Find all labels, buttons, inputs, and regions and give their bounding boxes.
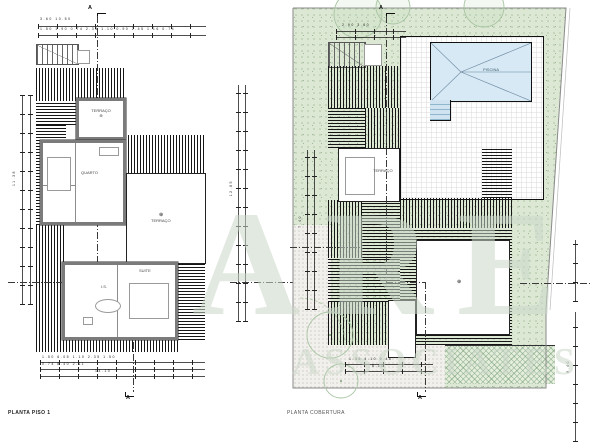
deck-hatch	[178, 262, 205, 340]
interior-wall	[75, 143, 76, 222]
room-suite: I.S. SUITE	[62, 262, 178, 340]
room-label: QUARTO	[81, 171, 98, 176]
section-marker-a: A	[88, 5, 92, 11]
dimension-line	[345, 362, 433, 367]
dim-text: 3.60 10.50	[40, 17, 208, 21]
bed	[129, 283, 169, 319]
dim-text: 12.85	[229, 180, 233, 196]
dimension-line	[28, 95, 33, 305]
dim-text: 2.90 3.60	[342, 23, 370, 27]
section-axis-line	[386, 16, 387, 282]
axis-line	[290, 247, 362, 248]
stair-landing	[77, 50, 90, 64]
dim-text: 1.50 6.05 1.10 2.35 1.50	[42, 355, 207, 359]
dimension-line	[40, 367, 205, 372]
section-axis-jog	[386, 282, 425, 283]
tree-trunk-dot	[340, 380, 342, 382]
level-marker: ⊕	[79, 114, 123, 119]
stairs	[36, 44, 79, 65]
dimension-line	[336, 35, 406, 40]
section-flag-icon	[386, 13, 395, 18]
dimension-line	[345, 369, 433, 374]
dim-text: 1.50 1.90 0.74 2.35 1.10 0.90 2.45 1.16 …	[40, 27, 208, 31]
plan-caption-left: PLANTA PISO 1	[8, 410, 50, 416]
bathtub	[95, 299, 121, 313]
room-terrace-top: TERRAÇO ⊕	[76, 98, 126, 140]
section-marker-a: A	[126, 395, 130, 401]
room-label: I.S.	[101, 285, 107, 290]
dim-text: 6.10	[372, 364, 385, 368]
dim-text: 9.40	[566, 360, 570, 373]
dimension-line	[573, 312, 578, 442]
dim-text: 11.38	[12, 170, 16, 186]
dimension-line	[38, 33, 206, 38]
dimension-line	[305, 150, 310, 310]
room-label: SUITE	[139, 269, 151, 274]
site-boundary-line	[293, 8, 566, 388]
wardrobe	[99, 147, 119, 156]
dimension-line	[40, 374, 205, 379]
bed	[47, 157, 71, 191]
section-marker-a: A	[379, 5, 383, 11]
dim-text: 1.35 4.10 0.45	[349, 357, 392, 361]
room-bedroom: QUARTO	[40, 140, 126, 225]
deck-hatch	[125, 135, 205, 173]
room-label: TERRAÇO	[151, 219, 171, 224]
dimension-line	[20, 95, 25, 305]
section-axis-line	[425, 282, 426, 392]
tree-icon	[464, 0, 504, 27]
drawing-sheet: 3.60 10.50 1.50 1.90 0.74 2.35 1.10 0.90…	[0, 0, 600, 447]
terrace-right: ⊕ TERRAÇO	[126, 173, 206, 264]
deck-hatch	[36, 101, 77, 125]
dimension-line	[236, 85, 241, 322]
dim-text: 7.40	[298, 215, 302, 228]
dimension-line	[336, 29, 406, 34]
site-overlay	[287, 0, 577, 400]
tree-trunk-dot	[329, 334, 331, 336]
dimension-line	[573, 240, 578, 302]
dim-text: 14.10	[95, 369, 111, 373]
dimension-line	[312, 150, 317, 310]
axis-line	[8, 282, 62, 283]
deck-hatch	[36, 340, 180, 352]
dimension-line	[243, 85, 248, 322]
deck-hatch	[36, 68, 126, 101]
dim-text: 0.74 8.40 2.11	[42, 362, 207, 366]
toilet	[83, 317, 93, 325]
axis-line	[520, 283, 590, 284]
section-flag-icon	[97, 13, 106, 18]
section-marker-a: A	[418, 395, 422, 401]
boundary-offset-line	[550, 8, 570, 310]
plan-caption-right: PLANTA COBERTURA	[287, 410, 345, 416]
